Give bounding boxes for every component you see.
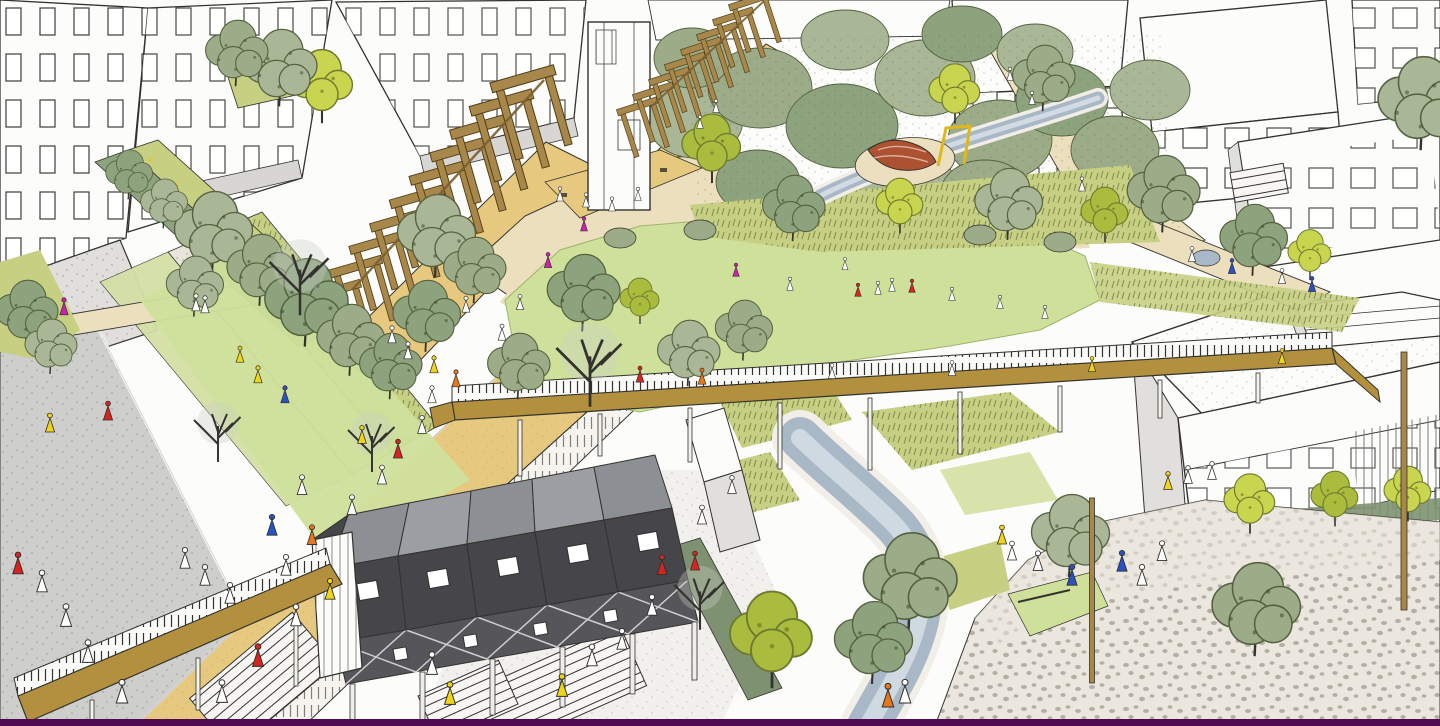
bottom-purple-strip	[0, 719, 1440, 726]
timber-pole	[1090, 498, 1095, 683]
walkway-post	[1058, 386, 1062, 432]
walkway-post	[1158, 380, 1162, 418]
masterplan-sketch-svg	[0, 0, 1440, 726]
bridge-post	[196, 658, 200, 710]
walkway-post	[958, 392, 962, 454]
walkway-post	[598, 414, 602, 456]
pond	[1192, 250, 1220, 266]
walkway-post	[778, 403, 782, 469]
walkway-post	[868, 398, 872, 470]
walkway-post	[1256, 373, 1260, 403]
illustration	[0, 0, 1440, 726]
walkway-post	[688, 408, 692, 462]
walkway-post	[518, 420, 522, 476]
bridge-post	[294, 616, 298, 686]
lift-tower	[588, 22, 650, 210]
timber-pole	[1401, 352, 1407, 610]
